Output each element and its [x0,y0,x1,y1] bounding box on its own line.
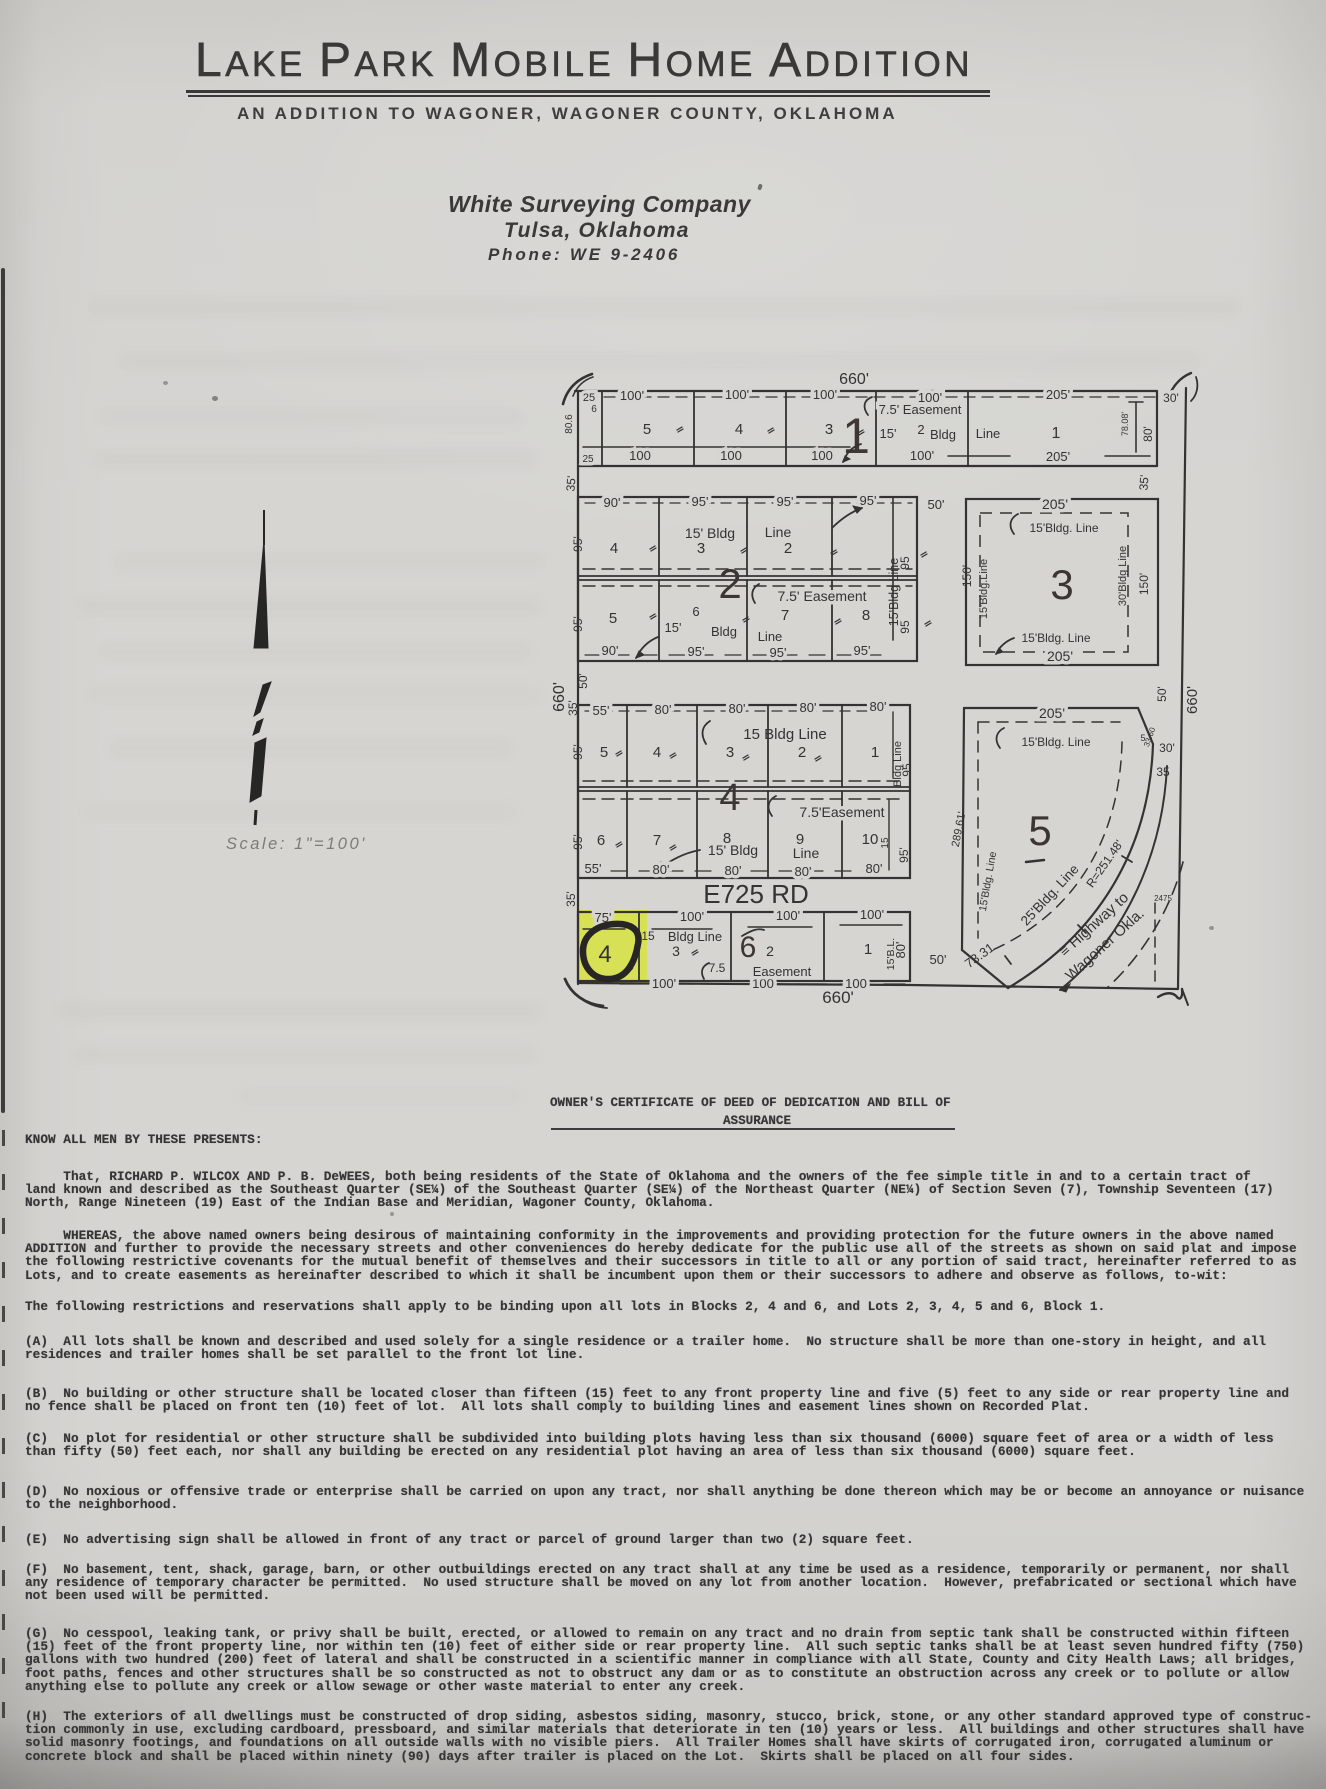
svg-text:6: 6 [692,604,699,619]
svg-text:8: 8 [862,607,870,624]
svg-text:9: 9 [796,831,804,848]
svg-text:100: 100 [811,448,833,463]
svg-text:3: 3 [697,540,705,557]
svg-text:3: 3 [672,943,680,959]
svg-text:2: 2 [718,560,741,607]
svg-text:7.5' Easement: 7.5' Easement [777,588,866,604]
svg-text:95: 95 [900,763,914,777]
svg-text:100': 100' [776,908,800,923]
svg-text:4: 4 [598,941,611,968]
svg-text:1: 1 [871,744,879,761]
svg-text:4: 4 [735,421,743,438]
svg-text:15' Bldg: 15' Bldg [708,842,758,858]
svg-text:95: 95 [898,556,912,570]
svg-text:E725 RD: E725 RD [703,879,809,909]
svg-text:35': 35' [564,891,578,907]
svg-text:30'Bldg Line: 30'Bldg Line [1117,546,1129,606]
svg-text:30': 30' [1159,741,1175,755]
svg-text:5: 5 [1028,807,1051,854]
svg-text:95': 95' [571,616,585,632]
svg-text:80': 80' [795,864,812,879]
svg-text:80.6: 80.6 [564,414,575,434]
svg-text:15' Bldg: 15' Bldg [685,525,735,541]
svg-text:25: 25 [582,454,594,465]
svg-text:4: 4 [719,777,740,819]
svg-text:95': 95' [777,494,794,509]
svg-text:15'Bldg. Line: 15'Bldg. Line [977,851,999,913]
svg-text:7: 7 [653,832,661,849]
svg-text:80': 80' [653,862,670,877]
svg-text:Bldg: Bldg [711,624,737,639]
svg-text:15'Bldg. Line: 15'Bldg. Line [1021,735,1090,749]
svg-text:73.31: 73.31 [962,940,997,971]
svg-text:205': 205' [1039,705,1065,721]
svg-text:7.5: 7.5 [709,961,726,975]
svg-text:15'Bldg. Line: 15'Bldg. Line [1021,631,1090,645]
svg-text:100': 100' [652,976,676,991]
svg-text:50': 50' [576,673,590,689]
svg-text:100': 100' [813,387,837,402]
svg-text:33.60: 33.60 [1142,726,1157,748]
svg-text:Easement: Easement [753,964,812,979]
svg-text:35: 35 [1156,765,1170,779]
svg-text:90': 90' [604,495,621,510]
svg-text:7.5'Easement: 7.5'Easement [799,804,884,820]
svg-text:15': 15' [880,426,897,441]
svg-text:150': 150' [1137,573,1151,595]
svg-text:8: 8 [723,830,731,847]
svg-text:205': 205' [1046,449,1070,464]
svg-text:7.5' Easement: 7.5' Easement [879,402,962,417]
svg-text:289.61': 289.61' [950,811,969,848]
svg-text:80': 80' [655,702,672,717]
svg-text:3: 3 [825,421,833,438]
svg-text:30': 30' [1163,391,1179,405]
svg-text:5: 5 [609,610,617,627]
svg-text:15'Bldg.Line: 15'Bldg.Line [978,559,990,619]
svg-text:150': 150' [960,565,974,587]
svg-text:100': 100' [725,387,749,402]
svg-text:95': 95' [854,643,871,658]
svg-text:95': 95' [571,834,585,850]
svg-text:5: 5 [600,744,608,761]
svg-text:2475: 2475 [1154,894,1172,903]
svg-text:15': 15' [665,620,682,635]
svg-text:Line: Line [976,426,1001,441]
svg-text:100': 100' [680,909,704,924]
svg-text:95': 95' [571,744,585,760]
svg-text:100: 100 [720,448,742,463]
svg-text:55': 55' [593,703,610,718]
svg-text:100: 100 [629,448,651,463]
svg-text:95: 95 [898,620,912,634]
svg-text:205': 205' [1042,496,1068,512]
svg-text:5: 5 [643,421,651,438]
svg-text:80': 80' [870,699,887,714]
svg-text:660': 660' [822,988,854,1007]
svg-text:2: 2 [766,943,774,959]
svg-text:80': 80' [729,701,746,716]
svg-text:205': 205' [1046,387,1070,402]
svg-text:4: 4 [653,744,661,761]
svg-text:4: 4 [610,540,618,557]
svg-text:50': 50' [930,952,947,967]
svg-text:1: 1 [1052,425,1061,442]
svg-text:15: 15 [641,929,655,943]
svg-text:Bldg: Bldg [930,427,956,442]
svg-text:205': 205' [1047,648,1073,664]
svg-text:R=251.48': R=251.48' [1083,837,1126,890]
svg-text:35': 35' [1136,474,1151,491]
svg-text:95': 95' [860,493,877,508]
svg-text:80': 80' [725,863,742,878]
svg-text:78.08': 78.08' [1120,412,1130,437]
svg-text:Bldg Line: Bldg Line [668,929,722,944]
svg-text:6: 6 [591,404,597,415]
svg-text:35': 35' [563,475,578,492]
svg-text:Line: Line [765,524,792,540]
svg-text:15'Bldg. Line: 15'Bldg. Line [1029,521,1098,535]
svg-text:1: 1 [864,941,872,958]
svg-text:80': 80' [866,861,883,876]
svg-text:2: 2 [784,540,792,557]
svg-text:35': 35' [566,700,580,716]
svg-text:10: 10 [862,831,879,848]
svg-text:80': 80' [800,700,817,715]
svg-text:2: 2 [798,744,806,761]
svg-text:95': 95' [688,644,705,659]
svg-text:55': 55' [585,861,602,876]
svg-text:90': 90' [602,643,619,658]
svg-text:100': 100' [910,448,934,463]
svg-text:50': 50' [1155,686,1169,702]
svg-text:660': 660' [839,371,869,388]
svg-text:95': 95' [770,645,787,660]
svg-text:95': 95' [571,536,585,552]
svg-text:15 Bldg Line: 15 Bldg Line [743,726,826,743]
svg-text:95': 95' [692,494,709,509]
svg-text:7: 7 [781,607,789,624]
svg-text:25: 25 [583,392,595,404]
svg-text:660': 660' [1184,686,1201,714]
svg-text:6: 6 [597,832,605,849]
svg-text:Line: Line [758,629,783,644]
svg-text:25'Bldg. Line: 25'Bldg. Line [1018,861,1082,928]
svg-text:95': 95' [897,847,911,863]
svg-text:50': 50' [928,497,945,512]
svg-text:3: 3 [1050,561,1073,608]
svg-text:80': 80' [893,942,908,959]
svg-text:100': 100' [860,907,884,922]
svg-text:2: 2 [917,422,924,437]
svg-text:80': 80' [1141,426,1155,442]
svg-text:6: 6 [740,931,757,964]
svg-text:3: 3 [726,744,734,761]
svg-text:100': 100' [620,388,644,403]
